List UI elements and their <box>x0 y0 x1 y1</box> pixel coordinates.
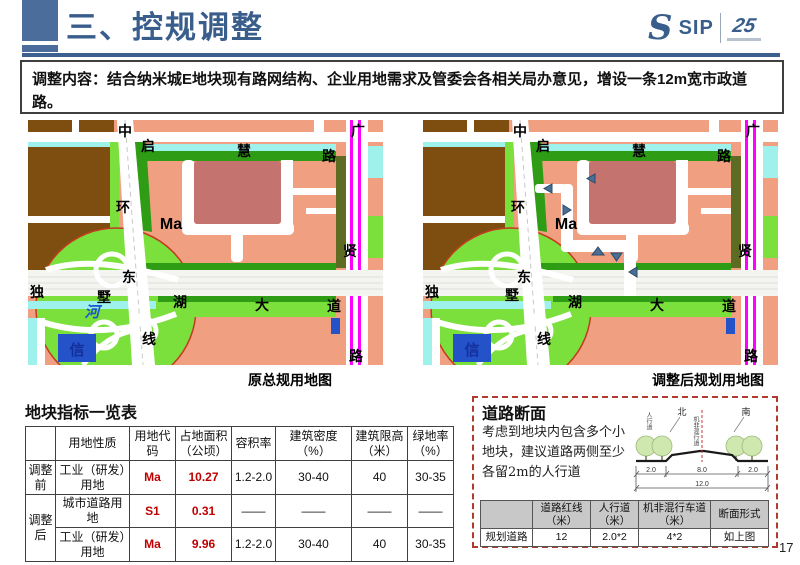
header-cell <box>481 501 533 529</box>
anniversary-caption-bar <box>727 38 761 41</box>
header-cell: 建筑限高（米） <box>352 427 408 461</box>
header-cell: 用地性质 <box>56 427 130 461</box>
leader-line <box>734 417 744 432</box>
far-cell: 1.2-2.0 <box>232 461 276 495</box>
page-number: 17 <box>779 540 793 555</box>
height-cell: 40 <box>352 461 408 495</box>
road-label: 东 <box>517 269 531 285</box>
plot-label-xin: 信 <box>464 341 479 359</box>
road-name-cell: 规划道路 <box>481 529 533 547</box>
far-cell: 1.2-2.0 <box>232 528 276 562</box>
map-adjusted-caption: 调整后规划用地图 <box>628 370 788 390</box>
plot-label-xin: 信 <box>69 341 84 359</box>
road-label: 广 <box>746 123 760 139</box>
table-header-row: 道路红线（米） 人行道（米） 机非混行车道（米） 断面形式 <box>481 501 769 529</box>
page-title: 三、控规调整 <box>66 2 264 47</box>
road-label: 环 <box>116 199 130 215</box>
road-label: 路 <box>349 348 364 364</box>
lane-label: 机非混行道 <box>692 415 699 447</box>
north-label: 北 <box>677 407 686 417</box>
road-label: 贤 <box>343 243 357 259</box>
road-label: 中 <box>118 123 132 139</box>
dim-total-label: 12.0 <box>695 481 709 488</box>
stage-cell: 调整前 <box>26 461 56 495</box>
road-label: 独 <box>30 284 44 300</box>
slide: 三、控规调整 S SIP 25 调整内容：结合纳米城E地块现有路网结构、企业用地… <box>0 0 800 565</box>
code-cell: S1 <box>130 495 176 528</box>
section-type-cell: 如上图 <box>711 529 769 547</box>
header-cell: 道路红线（米） <box>533 501 591 529</box>
road-label: 路 <box>322 148 337 164</box>
height-cell: 40 <box>352 528 408 562</box>
trees <box>636 436 762 456</box>
road-label: 中 <box>513 123 527 139</box>
map-adjusted-svg: 中 环 东 线 启 慧 路 广 贤 路 独 墅 湖 大 道 Ma 信 <box>423 120 778 365</box>
road-label: 路 <box>744 348 759 364</box>
map-adjusted: 中 环 东 线 启 慧 路 广 贤 路 独 墅 湖 大 道 Ma 信 <box>423 120 778 365</box>
header-cell: 占地面积（公顷） <box>176 427 232 461</box>
sidewalk-label: 人行道 <box>645 412 652 431</box>
leader-line <box>670 417 680 432</box>
density-cell: —— <box>276 495 352 528</box>
sip-s-icon: S <box>648 11 673 45</box>
table-row: 调整前 工业（研发）用地 Ma 10.27 1.2-2.0 30-40 40 3… <box>26 461 454 495</box>
header-cell <box>26 427 56 461</box>
road-label: 湖 <box>568 294 582 310</box>
header-cell: 用地代码 <box>130 427 176 461</box>
road-label: 独 <box>425 284 439 300</box>
header-cell: 建筑密度（%） <box>276 427 352 461</box>
road-cross-section-diagram: 北 南 人行道 机非混行道 2.0 8.0 2.0 12.0 <box>632 404 772 496</box>
road-section-box: 道路断面 考虑到地块内包含多个小地块，建议道路两侧至少各留2m的人行道 北 南 … <box>472 396 778 548</box>
road-label: 启 <box>141 138 155 154</box>
table-row: 工业（研发）用地 Ma 9.96 1.2-2.0 30-40 40 30-35 <box>26 528 454 562</box>
parcel-code-label: Ma <box>160 216 182 233</box>
sidewalk-cell: 2.0*2 <box>591 529 639 547</box>
table-row: 规划道路 12 2.0*2 4*2 如上图 <box>481 529 769 547</box>
lane-cell: 4*2 <box>639 529 711 547</box>
dim-label: 8.0 <box>697 467 707 474</box>
header-cell: 断面形式 <box>711 501 769 529</box>
road-label: 道 <box>327 298 341 314</box>
adjustment-summary-box: 调整内容：结合纳米城E地块现有路网结构、企业用地需求及管委会各相关局办意见，增设… <box>20 60 784 114</box>
area-cell: 10.27 <box>176 461 232 495</box>
road-label: 线 <box>537 331 551 347</box>
area-cell: 0.31 <box>176 495 232 528</box>
map-original: 中 环 东 线 启 慧 路 广 贤 路 独 墅 湖 大 道 Ma 河 信 <box>28 120 383 365</box>
road-parameters-table: 道路红线（米） 人行道（米） 机非混行车道（米） 断面形式 规划道路 12 2.… <box>480 500 769 547</box>
code-cell: Ma <box>130 461 176 495</box>
parcel-code-label: Ma <box>555 216 577 233</box>
height-cell: —— <box>352 495 408 528</box>
code-cell: Ma <box>130 528 176 562</box>
map-original-svg: 中 环 东 线 启 慧 路 广 贤 路 独 墅 湖 大 道 Ma 河 信 <box>28 120 383 365</box>
road-label: 大 <box>255 297 269 313</box>
header-underline <box>22 53 780 57</box>
nature-cell: 工业（研发）用地 <box>56 528 130 562</box>
table-row: 调整后 城市道路用地 S1 0.31 —— —— —— —— <box>26 495 454 528</box>
road-label: 路 <box>717 148 732 164</box>
green-cell: 30-35 <box>408 528 454 562</box>
road-label: 湖 <box>173 294 187 310</box>
road-label: 广 <box>351 123 365 139</box>
sip-logo: S SIP 25 <box>648 8 761 48</box>
south-label: 南 <box>741 406 750 417</box>
green-cell: 30-35 <box>408 461 454 495</box>
road-label: 线 <box>142 331 156 347</box>
nature-cell: 工业（研发）用地 <box>56 461 130 495</box>
logo-divider <box>720 13 721 43</box>
density-cell: 30-40 <box>276 528 352 562</box>
header-cell: 容积率 <box>232 427 276 461</box>
header-accent-bar <box>22 45 58 52</box>
road-label: 墅 <box>505 287 519 303</box>
header-cell: 机非混行车道（米） <box>639 501 711 529</box>
header-cell: 绿地率（%） <box>408 427 454 461</box>
nature-cell: 城市道路用地 <box>56 495 130 528</box>
dim-label: 2.0 <box>646 467 656 474</box>
redline-cell: 12 <box>533 529 591 547</box>
table-header-row: 用地性质 用地代码 占地面积（公顷） 容积率 建筑密度（%） 建筑限高（米） 绿… <box>26 427 454 461</box>
road-label: 东 <box>122 269 136 285</box>
road-section-title: 道路断面 <box>482 400 546 424</box>
sip-wordmark: SIP <box>679 17 714 40</box>
header-cell: 人行道（米） <box>591 501 639 529</box>
map-original-caption: 原总规用地图 <box>230 370 350 390</box>
green-cell: —— <box>408 495 454 528</box>
road-label: 墅 <box>97 289 111 305</box>
road-label: 贤 <box>738 243 752 259</box>
indicator-table-title: 地块指标一览表 <box>25 399 137 423</box>
road-label: 道 <box>722 298 736 314</box>
road-section-note: 考虑到地块内包含多个小地块，建议道路两侧至少各留2m的人行道 <box>482 423 634 483</box>
area-cell: 9.96 <box>176 528 232 562</box>
density-cell: 30-40 <box>276 461 352 495</box>
road-label: 慧 <box>237 143 251 159</box>
anniversary-logo: 25 <box>727 16 761 41</box>
header-accent-square <box>22 0 58 41</box>
road-label: 慧 <box>632 143 646 159</box>
road-label: 环 <box>511 199 525 215</box>
dim-label: 2.0 <box>748 467 758 474</box>
road-label: 启 <box>536 138 550 154</box>
anniversary-25: 25 <box>731 16 758 36</box>
indicator-table: 用地性质 用地代码 占地面积（公顷） 容积率 建筑密度（%） 建筑限高（米） 绿… <box>25 426 454 562</box>
far-cell: —— <box>232 495 276 528</box>
road-label: 大 <box>650 297 664 313</box>
stage-cell: 调整后 <box>26 495 56 562</box>
